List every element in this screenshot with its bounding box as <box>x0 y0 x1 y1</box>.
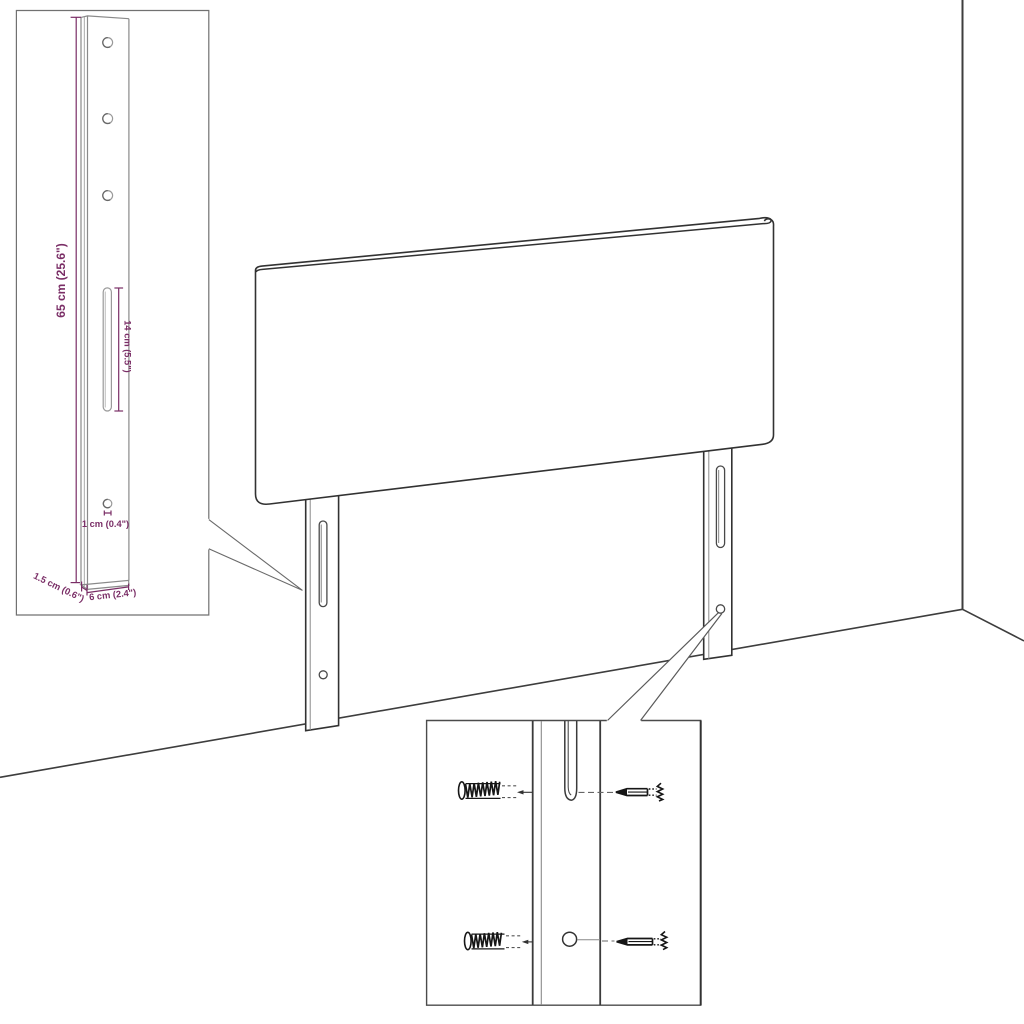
svg-text:14 cm (5.5"): 14 cm (5.5") <box>122 320 132 372</box>
svg-text:1 cm (0.4"): 1 cm (0.4") <box>82 519 129 529</box>
svg-text:65 cm (25.6"): 65 cm (25.6") <box>54 243 68 317</box>
